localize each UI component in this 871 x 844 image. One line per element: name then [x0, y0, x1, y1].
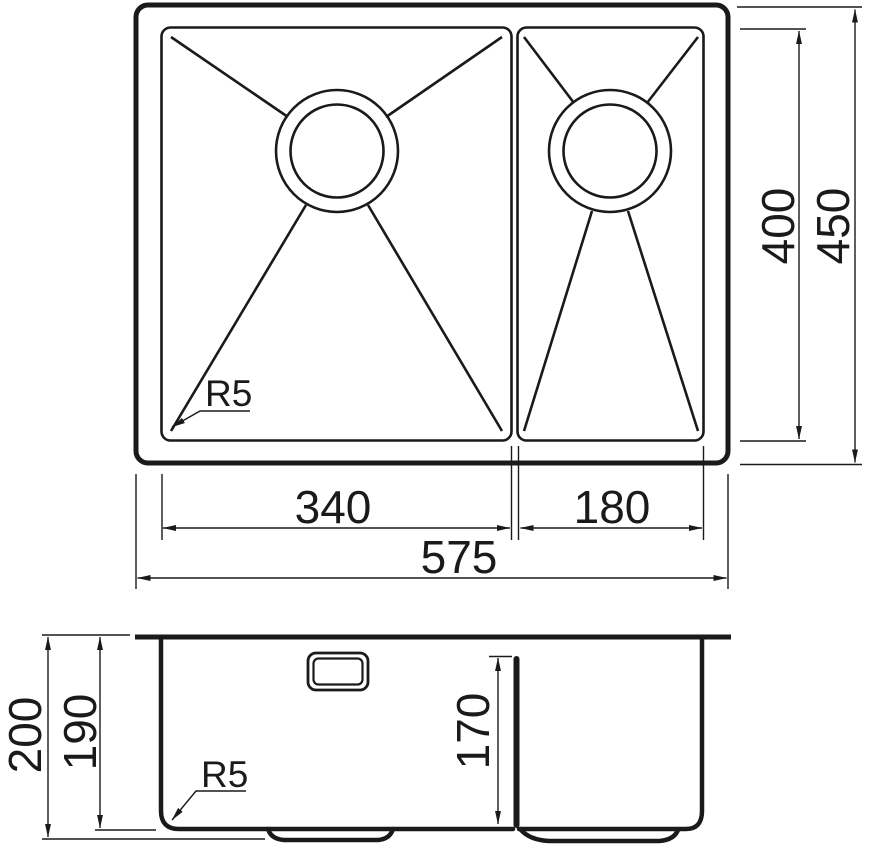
dimension-value: 340	[295, 481, 372, 533]
dimension-value: 200	[0, 697, 51, 774]
half-bowl-drain-outer-circle	[549, 90, 671, 212]
dimension-half-bowl-depth: 170	[447, 658, 499, 824]
half-bowl-profile	[519, 639, 702, 829]
dimension-value: 450	[807, 188, 859, 265]
corner-radius-label: R5	[205, 373, 252, 414]
section-extension-lines	[42, 635, 512, 839]
dimension-value: 180	[574, 481, 651, 533]
dimension-overall-depth: 200	[0, 637, 51, 837]
dimension-overall-width: 575	[138, 531, 727, 583]
leader-line	[172, 791, 246, 820]
dimension-half-bowl-width: 180	[521, 481, 703, 533]
overflow-hole	[308, 653, 368, 690]
main-bowl-base-crease-lines	[171, 37, 502, 431]
section-view: 200 190 170 R5	[0, 635, 731, 841]
dimension-value: 400	[752, 188, 804, 265]
dimension-value: 170	[447, 693, 499, 770]
drawing-canvas: R5 340 180 575 400 450	[0, 0, 871, 844]
section-corner-radius-callout: R5	[172, 754, 248, 820]
half-bowl-drain-recess	[521, 830, 678, 841]
dimension-overall-length: 450	[807, 10, 859, 463]
overflow-hole-inner	[314, 659, 363, 685]
corner-radius-label: R5	[201, 754, 248, 795]
sink-technical-drawing: R5 340 180 575 400 450	[0, 0, 871, 844]
top-view: R5 340 180 575 400 450	[136, 5, 862, 589]
main-bowl-drain-inner-circle	[291, 105, 384, 198]
dimension-value: 190	[54, 694, 106, 771]
top-view-corner-radius-callout: R5	[172, 373, 252, 427]
half-bowl-base-crease-lines	[524, 37, 698, 431]
main-bowl-drain-outer-circle	[276, 90, 398, 212]
dimension-main-bowl-width: 340	[163, 481, 510, 533]
dimension-value: 575	[421, 531, 498, 583]
half-bowl-drain-inner-circle	[564, 105, 657, 198]
dimension-main-bowl-depth: 190	[54, 637, 106, 828]
dimension-bowl-length: 400	[752, 31, 804, 439]
